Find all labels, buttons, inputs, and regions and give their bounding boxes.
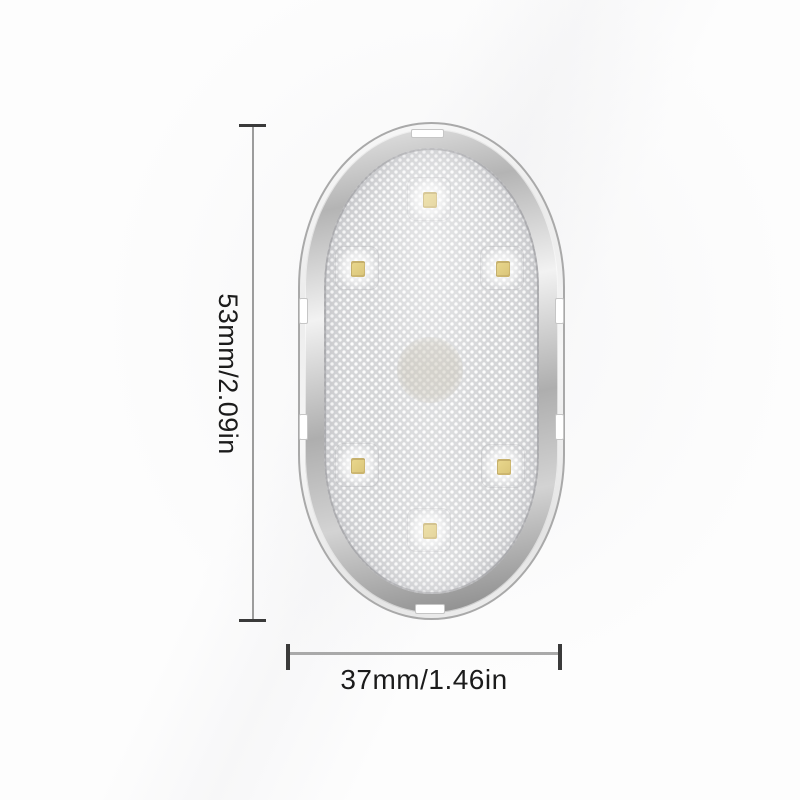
height-dimension-line [252,126,254,622]
product-diagram: 53mm/2.09in 37mm/1.46in [0,0,800,800]
rim-notch-left-lower [299,414,308,440]
rim-notch-left-upper [299,298,308,324]
led-chip-die [497,459,511,475]
led-chip-die [423,192,437,208]
led-chip-die [351,261,365,277]
rim-notch-right-upper [555,298,564,324]
led-chip [335,246,379,290]
led-chip-die [496,261,510,277]
led-chip-die [351,458,365,474]
led-chip [335,443,379,487]
led-chip-die [423,523,437,539]
led-chip [407,508,451,552]
width-dimension-label: 37mm/1.46in [274,662,574,698]
led-chip [407,177,451,221]
height-dimension-label: 53mm/2.09in [211,224,245,524]
touch-sensor-circle [397,337,463,403]
led-chip [480,246,524,290]
width-dimension-line [288,652,561,655]
height-dimension-tick-bottom [239,619,266,622]
rim-notch-top [411,129,444,138]
rim-notch-bottom [415,604,445,614]
led-chip [481,444,525,488]
height-dimension-tick-top [239,124,266,127]
lamp-body [298,122,565,620]
rim-notch-right-lower [555,414,564,440]
